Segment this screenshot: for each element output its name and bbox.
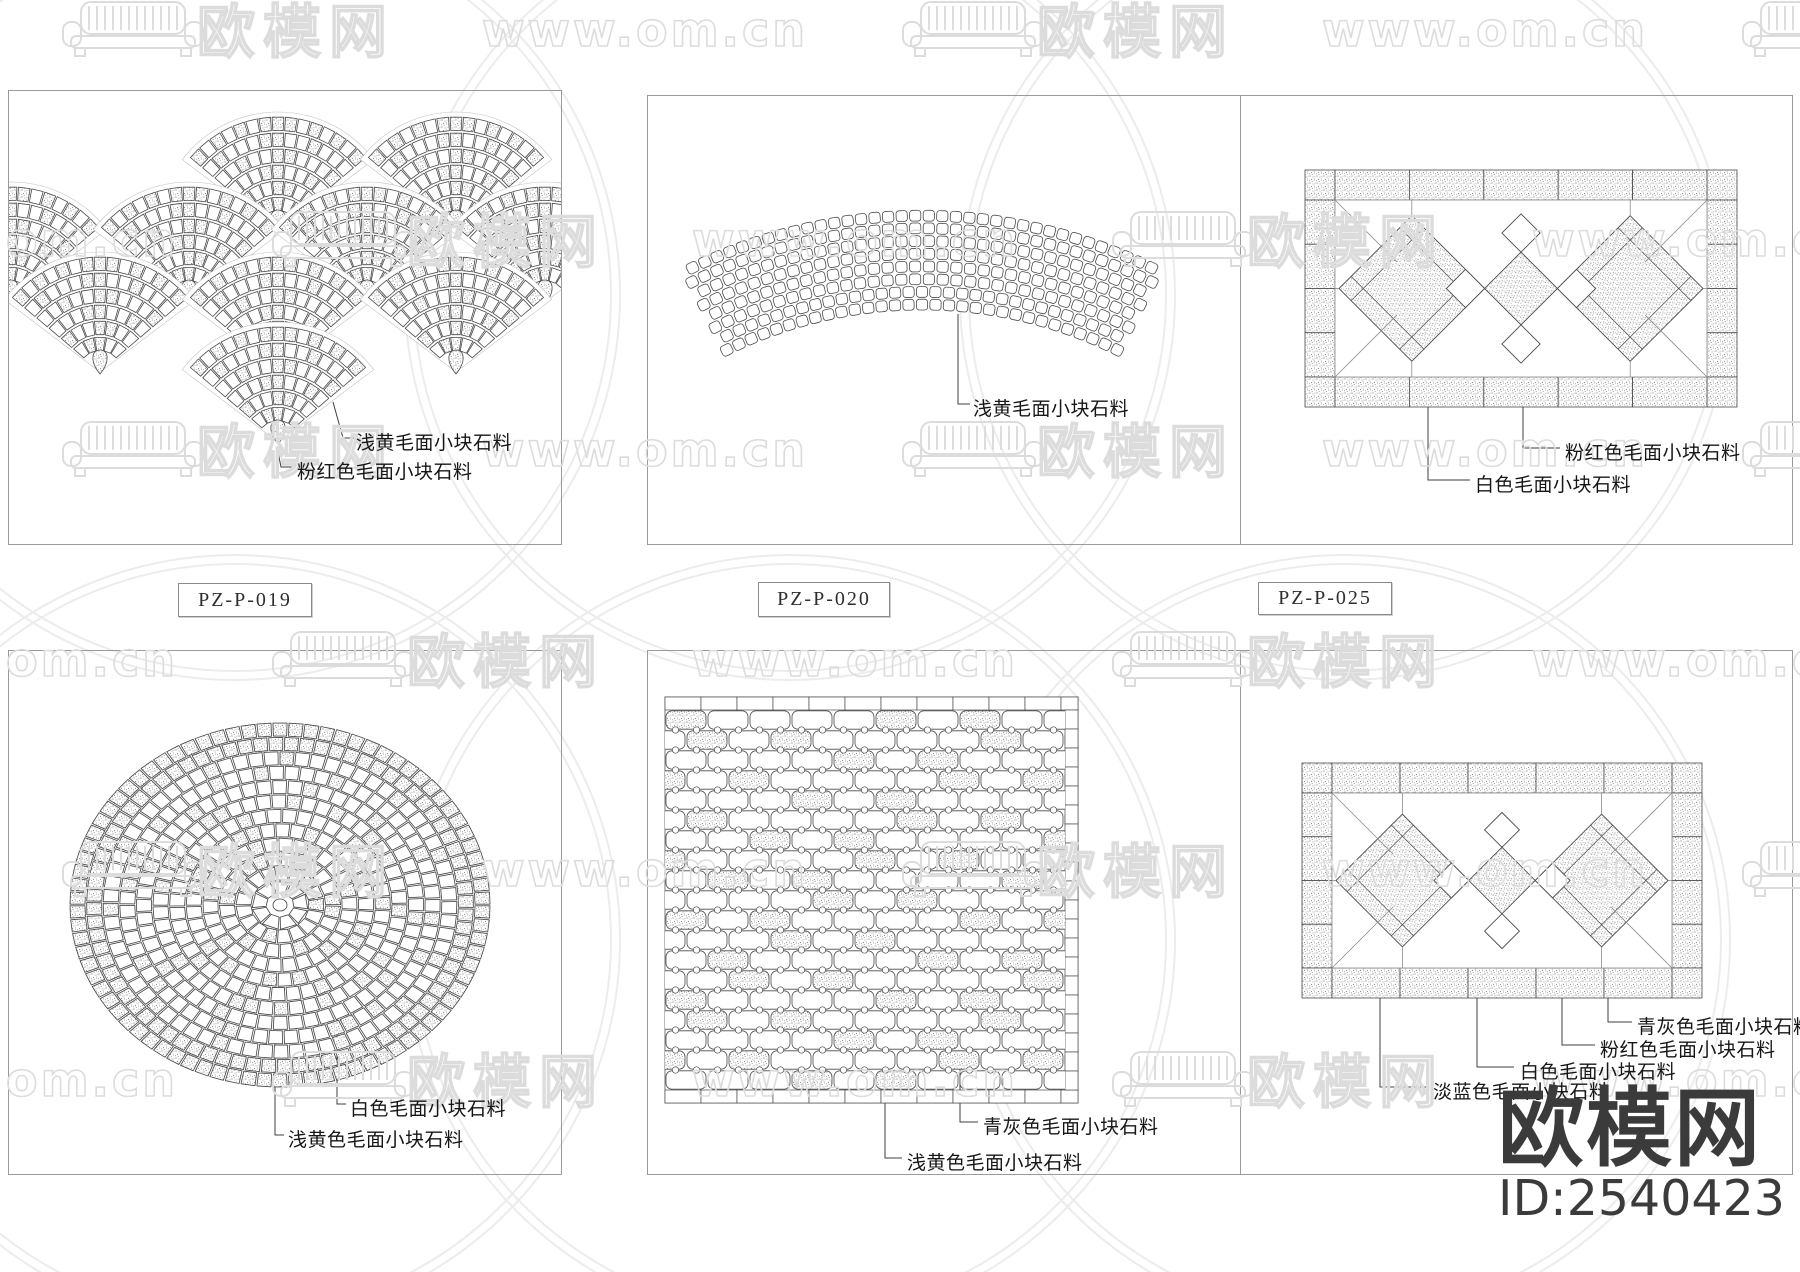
svg-text:欧模网: 欧模网 bbox=[1037, 418, 1235, 486]
brand-watermark: 欧模网 ID:2540423 bbox=[1498, 1086, 1785, 1223]
svg-text:欧模网: 欧模网 bbox=[1247, 208, 1445, 276]
svg-text:www.om.cn: www.om.cn bbox=[692, 633, 1018, 687]
svg-text:欧模网: 欧模网 bbox=[1037, 0, 1235, 66]
code-tag: PZ-P-020 bbox=[758, 582, 890, 617]
material-label: 粉红色毛面小块石料 bbox=[1565, 438, 1741, 465]
svg-text:欧模网: 欧模网 bbox=[197, 0, 395, 66]
svg-text:欧模网: 欧模网 bbox=[407, 208, 605, 276]
brand-id-text: ID:2540423 bbox=[1498, 1174, 1785, 1223]
svg-text:www.om.cn: www.om.cn bbox=[692, 1053, 1018, 1107]
svg-text:www.om.cn: www.om.cn bbox=[482, 423, 808, 477]
svg-text:www.om.cn: www.om.cn bbox=[0, 1053, 178, 1107]
svg-text:www.om.cn: www.om.cn bbox=[482, 843, 808, 897]
material-label: 浅黄色毛面小块石料 bbox=[907, 1148, 1083, 1175]
svg-text:www.om.cn: www.om.cn bbox=[692, 213, 1018, 267]
svg-text:欧模网: 欧模网 bbox=[407, 628, 605, 696]
cad-sheet: 欧模网www.om.cn欧模网www.om.cn欧模网www.om.cn欧模网w… bbox=[0, 0, 1800, 1272]
svg-text:www.om.cn: www.om.cn bbox=[1532, 633, 1800, 687]
code-tag: PZ-P-019 bbox=[178, 583, 312, 617]
svg-text:欧模网: 欧模网 bbox=[1247, 628, 1445, 696]
svg-text:www.om.cn: www.om.cn bbox=[0, 633, 178, 687]
material-label: 青灰色毛面小块石料 bbox=[983, 1112, 1159, 1139]
svg-text:www.om.cn: www.om.cn bbox=[0, 213, 178, 267]
material-label: 浅黄毛面小块石料 bbox=[356, 428, 512, 455]
material-label: 浅黄毛面小块石料 bbox=[973, 394, 1129, 421]
brand-logo-text: 欧模网 bbox=[1498, 1086, 1785, 1172]
svg-text:www.om.cn: www.om.cn bbox=[1532, 213, 1800, 267]
svg-text:www.om.cn: www.om.cn bbox=[482, 3, 808, 57]
svg-text:欧模网: 欧模网 bbox=[1247, 1048, 1445, 1116]
material-label: 白色毛面小块石料 bbox=[350, 1094, 506, 1121]
material-label: 白色毛面小块石料 bbox=[1475, 470, 1631, 497]
material-label: 浅黄色毛面小块石料 bbox=[288, 1125, 464, 1152]
material-label: 粉红色毛面小块石料 bbox=[297, 457, 473, 484]
svg-text:欧模网: 欧模网 bbox=[197, 838, 395, 906]
code-tag: PZ-P-025 bbox=[1258, 582, 1392, 615]
svg-text:www.om.cn: www.om.cn bbox=[1322, 3, 1648, 57]
svg-text:www.om.cn: www.om.cn bbox=[1322, 843, 1648, 897]
svg-text:欧模网: 欧模网 bbox=[1037, 838, 1235, 906]
